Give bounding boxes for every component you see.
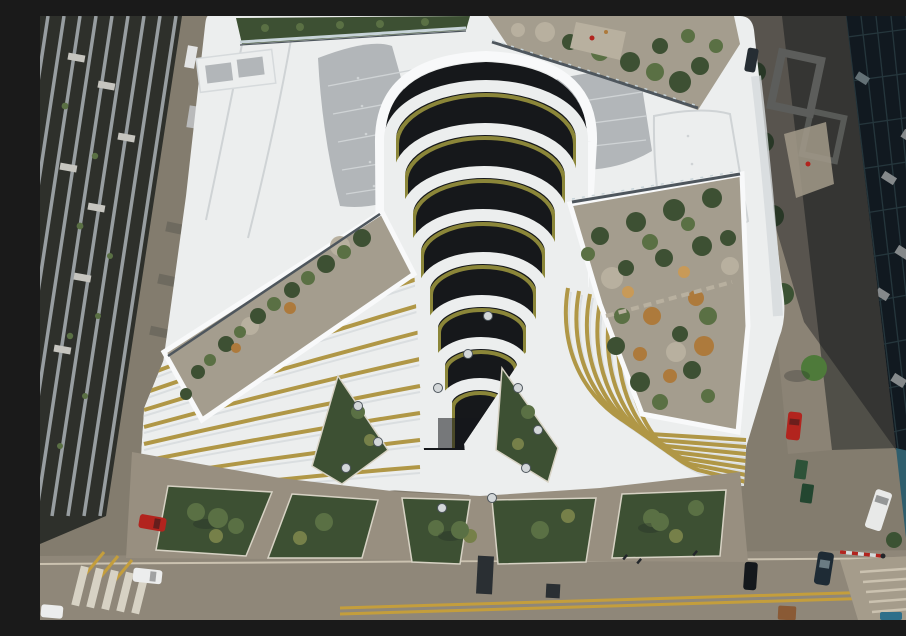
rust-truck bbox=[778, 606, 797, 620]
white-car-corner bbox=[40, 604, 63, 619]
skylight-dome bbox=[354, 402, 363, 411]
planting-bed bbox=[612, 490, 726, 558]
skylight-dome bbox=[514, 384, 523, 393]
aerial-photo-canvas bbox=[40, 16, 906, 620]
blue-car bbox=[880, 612, 902, 620]
skylight-dome bbox=[342, 464, 351, 473]
red-object-roof bbox=[590, 36, 595, 41]
black-car-right bbox=[743, 562, 758, 591]
skylight-dome bbox=[374, 438, 383, 447]
skylight-dome bbox=[464, 350, 473, 359]
aerial-photograph bbox=[40, 16, 906, 620]
red-car-right bbox=[786, 411, 803, 440]
pool-side-plant bbox=[886, 532, 902, 548]
skylight-dome bbox=[434, 384, 443, 393]
grate bbox=[546, 584, 561, 599]
skylight-dome bbox=[534, 426, 543, 435]
skylight-dome bbox=[488, 494, 497, 503]
skylight-dome bbox=[522, 464, 531, 473]
orange-object-roof bbox=[604, 30, 608, 34]
skylight-dome bbox=[438, 504, 447, 513]
red-object bbox=[806, 162, 811, 167]
skylight-dome bbox=[484, 312, 493, 321]
grate bbox=[476, 556, 494, 595]
round-tree-shadow bbox=[784, 370, 810, 382]
